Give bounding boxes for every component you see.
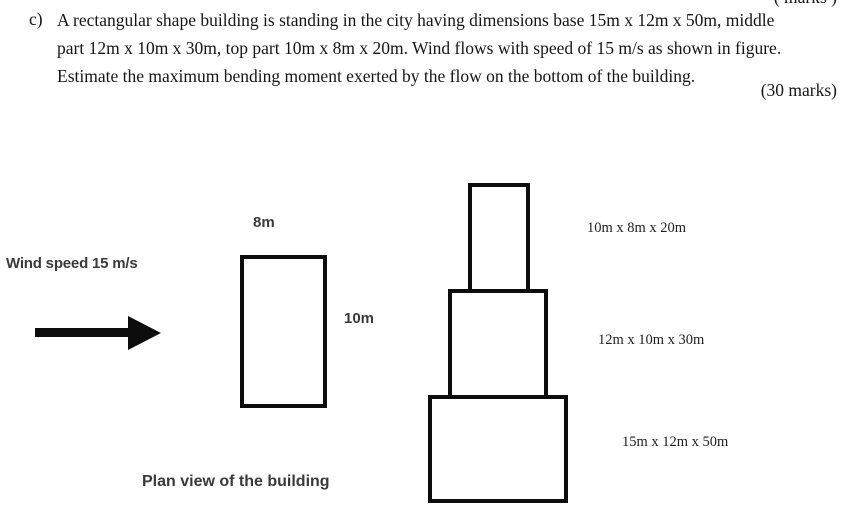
bottom-section-dimensions-label: 15m x 12m x 50m <box>622 434 728 451</box>
middle-section-dimensions-label: 12m x 10m x 30m <box>598 332 704 349</box>
wind-direction-arrow-icon <box>35 315 161 351</box>
document-page: ( marks ) c) A rectangular shape buildin… <box>0 0 841 511</box>
clipped-previous-line-text: ( marks ) <box>774 0 837 7</box>
question-text-line-1: A rectangular shape building is standing… <box>57 9 827 31</box>
elevation-middle-section-rectangle <box>448 289 548 399</box>
clipped-previous-line: ( marks ) <box>737 0 837 7</box>
plan-width-dimension-label: 8m <box>253 214 275 231</box>
plan-view-caption: Plan view of the building <box>142 473 330 491</box>
question-number: c) <box>29 9 43 30</box>
marks-allocation: (30 marks) <box>761 80 837 101</box>
question-text-line-2: part 12m x 10m x 30m, top part 10m x 8m … <box>57 37 827 59</box>
arrow-head <box>128 316 161 350</box>
elevation-top-section-rectangle <box>468 183 530 293</box>
plan-view-rectangle <box>240 255 327 408</box>
question-text-line-3: Estimate the maximum bending moment exer… <box>57 65 827 87</box>
wind-speed-label: Wind speed 15 m/s <box>6 255 138 272</box>
arrow-shaft <box>35 328 131 337</box>
plan-depth-dimension-label: 10m <box>344 310 374 327</box>
top-section-dimensions-label: 10m x 8m x 20m <box>587 220 686 237</box>
elevation-bottom-section-rectangle <box>428 395 568 503</box>
